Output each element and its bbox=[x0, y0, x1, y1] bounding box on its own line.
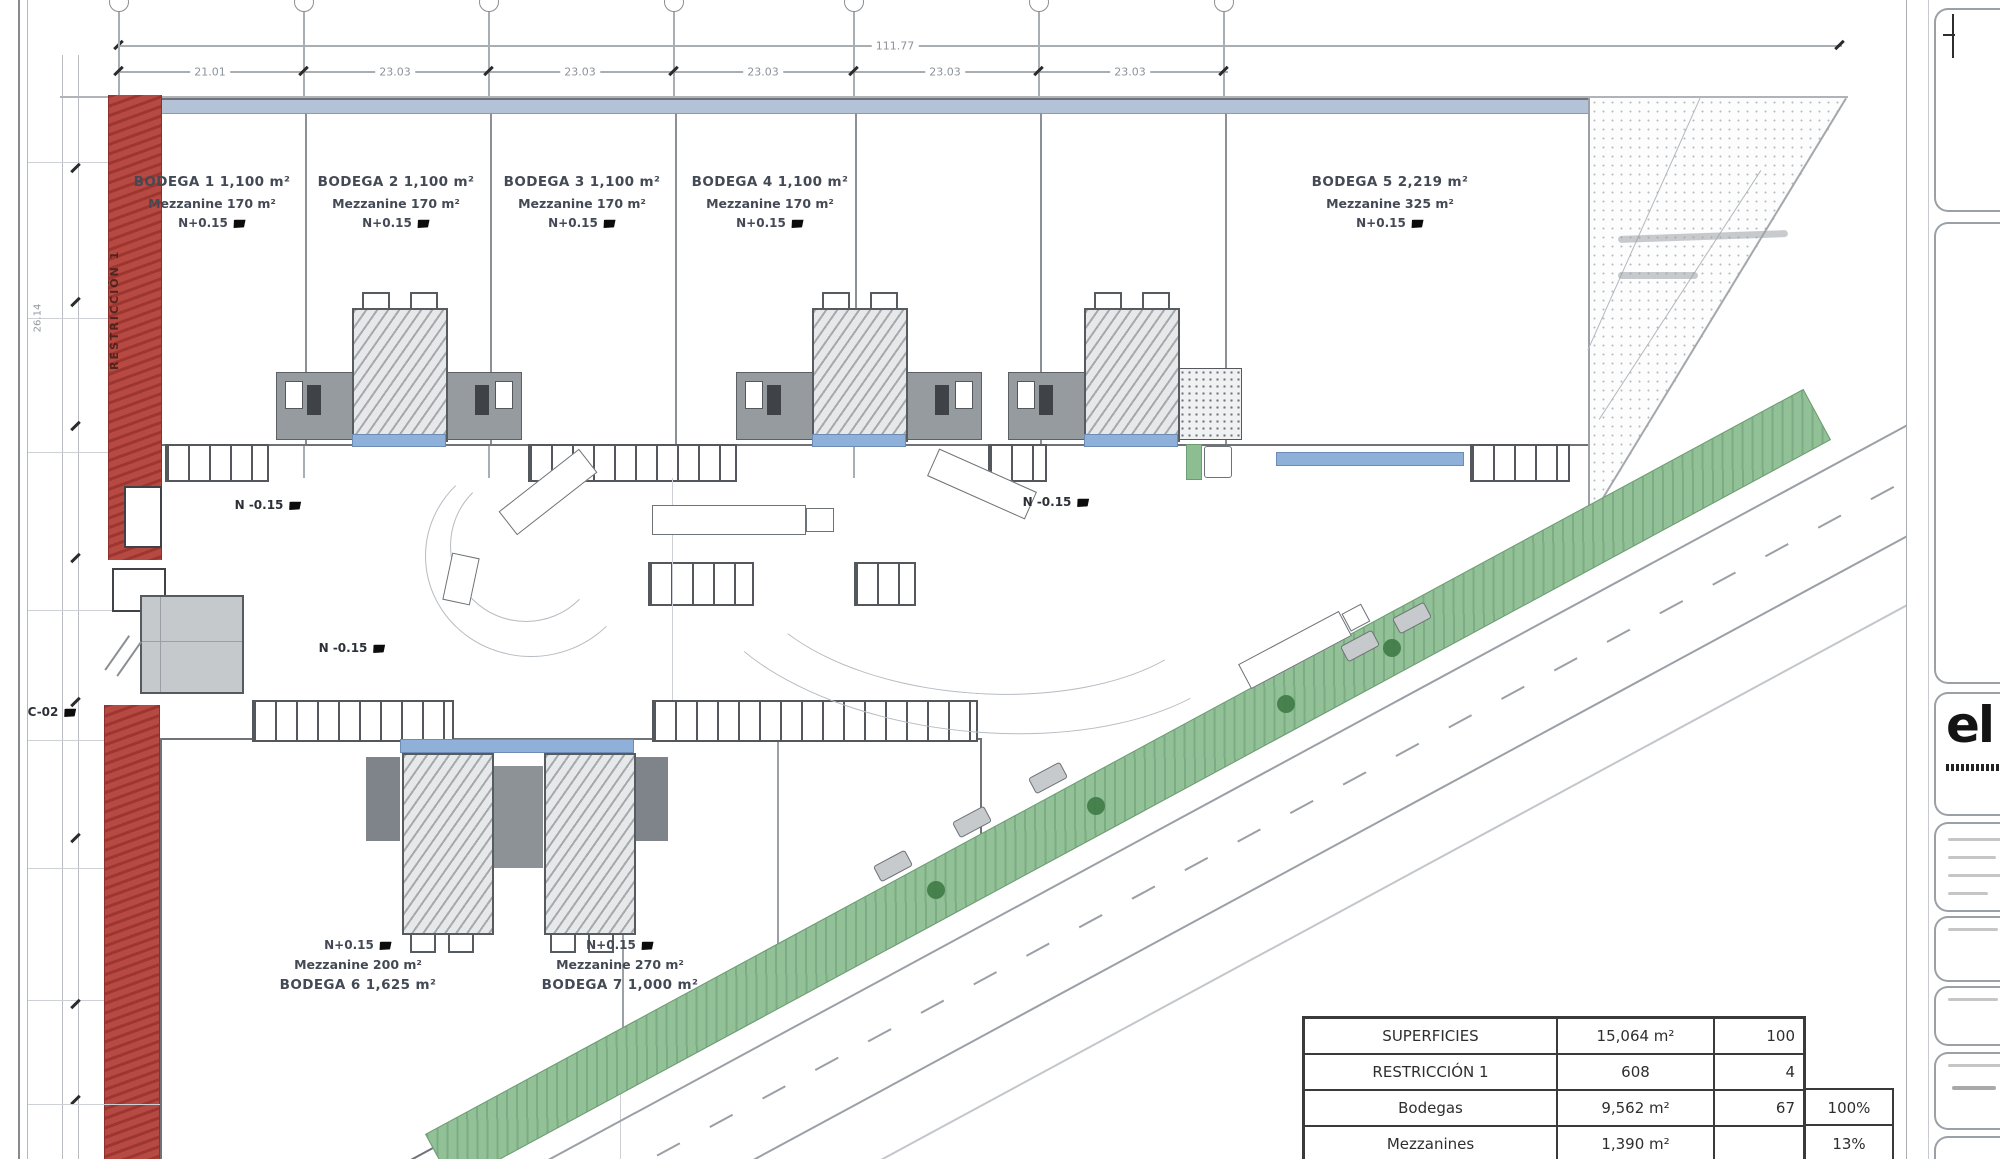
tree bbox=[1383, 639, 1401, 657]
table-cell-label: SUPERFICIES bbox=[1304, 1018, 1557, 1054]
truck-cab bbox=[806, 508, 834, 532]
bodega-level: N+0.15 bbox=[495, 936, 745, 955]
table-cell-pct: 67 bbox=[1714, 1090, 1804, 1126]
company-logo: el bbox=[1946, 696, 1993, 754]
table-extra-cell: 100% bbox=[1804, 1088, 1894, 1128]
north-arrow-icon bbox=[1943, 34, 1955, 36]
table-cell-pct: 100 bbox=[1714, 1018, 1804, 1054]
table-cell-pct: 4 bbox=[1714, 1054, 1804, 1090]
level-flag-icon bbox=[232, 218, 246, 229]
level-flag-icon bbox=[1410, 218, 1424, 229]
level-flag-icon bbox=[416, 218, 430, 229]
logo-subtext bbox=[1946, 764, 2000, 771]
bodega-mezzanine: Mezzanine 325 m² bbox=[1265, 194, 1515, 214]
level-flag-icon bbox=[790, 218, 804, 229]
bodega-level: N+0.15 bbox=[233, 936, 483, 955]
area-summary-table: SUPERFICIES 15,064 m² 100 RESTRICCIÓN 1 … bbox=[1302, 1016, 1806, 1159]
bodega-label: N+0.15 Mezzanine 200 m² BODEGA 6 1,625 m… bbox=[233, 936, 483, 997]
table-cell-value: 608 bbox=[1557, 1054, 1714, 1090]
site-plan-sheet: 26.14 C-02 111.77 21.01 23.03 23.03 23.0… bbox=[0, 0, 2000, 1159]
level-flag-icon bbox=[602, 218, 616, 229]
yard-level-label: N -0.15 bbox=[235, 498, 302, 512]
titleblock-box bbox=[1934, 986, 2000, 1046]
level-flag-icon bbox=[1076, 497, 1090, 508]
table-cell-value: 1,390 m² bbox=[1557, 1126, 1714, 1159]
bodega-title: BODEGA 5 2,219 m² bbox=[1265, 172, 1515, 194]
bodega-mezzanine: Mezzanine 170 m² bbox=[645, 194, 895, 214]
tree bbox=[927, 881, 945, 899]
titleblock-box bbox=[1934, 822, 2000, 912]
titleblock-box bbox=[1934, 1136, 2000, 1159]
titleblock-logo-box: el bbox=[1934, 692, 2000, 816]
titleblock-border bbox=[1928, 0, 1929, 1159]
table-row: SUPERFICIES 15,064 m² 100 bbox=[1304, 1018, 1804, 1054]
table-row: RESTRICCIÓN 1 608 4 bbox=[1304, 1054, 1804, 1090]
table-cell-label: Bodegas bbox=[1304, 1090, 1557, 1126]
table-cell-value: 9,562 m² bbox=[1557, 1090, 1714, 1126]
yard-level-label: N -0.15 bbox=[319, 641, 386, 655]
bodega-label: BODEGA 5 2,219 m² Mezzanine 325 m² N+0.1… bbox=[1265, 172, 1515, 233]
titleblock-box bbox=[1934, 1052, 2000, 1130]
bodega-title: BODEGA 4 1,100 m² bbox=[645, 172, 895, 194]
table-cell-label: RESTRICCIÓN 1 bbox=[1304, 1054, 1557, 1090]
level-flag-icon bbox=[378, 940, 392, 951]
bodega-label: N+0.15 Mezzanine 270 m² BODEGA 7 1,000 m… bbox=[495, 936, 745, 997]
bodega-level: N+0.15 bbox=[1265, 214, 1515, 233]
table-row: Mezzanines 1,390 m² bbox=[1304, 1126, 1804, 1159]
level-flag-icon bbox=[640, 940, 654, 951]
bodega-title: BODEGA 6 1,625 m² bbox=[233, 975, 483, 997]
bodega-level: N+0.15 bbox=[645, 214, 895, 233]
table-row: Bodegas 9,562 m² 67 bbox=[1304, 1090, 1804, 1126]
level-flag-icon bbox=[372, 643, 386, 654]
level-flag-icon bbox=[288, 500, 302, 511]
bodega-title: BODEGA 7 1,000 m² bbox=[495, 975, 745, 997]
tree bbox=[1087, 797, 1105, 815]
titleblock-box bbox=[1934, 222, 2000, 684]
table-cell-label: Mezzanines bbox=[1304, 1126, 1557, 1159]
north-arrow-icon bbox=[1952, 14, 1954, 58]
sheet-border-right bbox=[1906, 0, 1907, 1159]
bodega-mezzanine: Mezzanine 200 m² bbox=[233, 955, 483, 975]
truck bbox=[652, 505, 806, 535]
table-cell-pct bbox=[1714, 1126, 1804, 1159]
titleblock-box bbox=[1934, 916, 2000, 982]
yard-level-label: N -0.15 bbox=[1023, 495, 1090, 509]
tree bbox=[1277, 695, 1295, 713]
table-cell-value: 15,064 m² bbox=[1557, 1018, 1714, 1054]
bodega-label: BODEGA 4 1,100 m² Mezzanine 170 m² N+0.1… bbox=[645, 172, 895, 233]
table-extra-cell: 13% bbox=[1804, 1124, 1894, 1159]
titleblock-box bbox=[1934, 8, 2000, 212]
bodega-mezzanine: Mezzanine 270 m² bbox=[495, 955, 745, 975]
